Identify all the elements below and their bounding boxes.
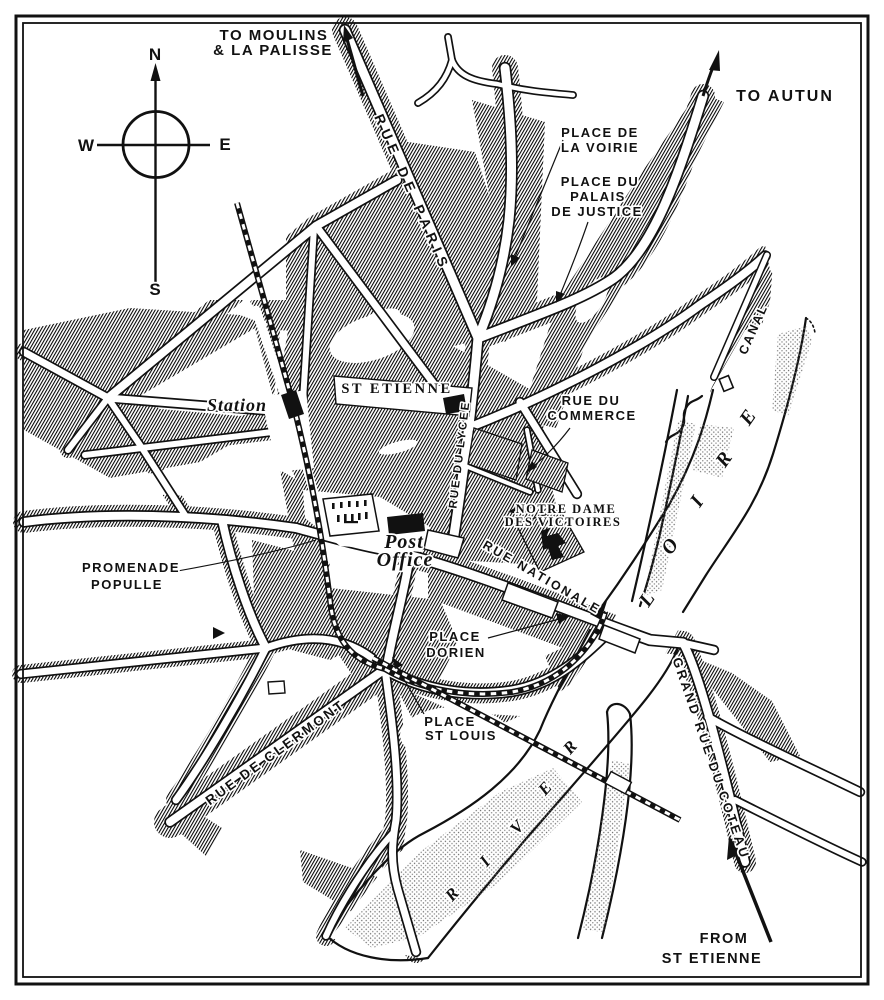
svg-text:N: N <box>149 45 161 64</box>
svg-text:LA VOIRIE: LA VOIRIE <box>561 140 639 155</box>
svg-text:PLACE: PLACE <box>429 629 481 644</box>
svg-text:Office: Office <box>377 549 434 571</box>
svg-text:ST ETIENNE: ST ETIENNE <box>662 951 762 967</box>
svg-text:DE JUSTICE: DE JUSTICE <box>551 204 643 219</box>
svg-text:ST ETIENNE: ST ETIENNE <box>341 381 452 397</box>
svg-text:FROM: FROM <box>700 931 749 947</box>
svg-text:E: E <box>219 135 230 154</box>
svg-text:COMMERCE: COMMERCE <box>547 408 636 423</box>
svg-text:W: W <box>78 136 95 155</box>
svg-text:PALAIS: PALAIS <box>570 189 626 204</box>
svg-text:NOTRE DAME: NOTRE DAME <box>516 502 617 516</box>
svg-text:POPULLE: POPULLE <box>91 577 163 592</box>
svg-text:DES VICTOIRES: DES VICTOIRES <box>505 515 622 529</box>
svg-text:PLACE DU: PLACE DU <box>561 174 639 189</box>
svg-text:TO AUTUN: TO AUTUN <box>736 88 834 105</box>
svg-text:DORIEN: DORIEN <box>426 645 486 660</box>
svg-text:PLACE: PLACE <box>424 714 476 729</box>
svg-text:RUE DU: RUE DU <box>562 393 621 408</box>
svg-text:Station: Station <box>207 395 267 415</box>
svg-text:S: S <box>149 280 160 299</box>
svg-text:& LA PALISSE: & LA PALISSE <box>213 42 333 59</box>
svg-text:ST LOUIS: ST LOUIS <box>425 728 497 743</box>
svg-text:PROMENADE: PROMENADE <box>82 560 180 575</box>
svg-text:PLACE DE: PLACE DE <box>561 125 639 140</box>
